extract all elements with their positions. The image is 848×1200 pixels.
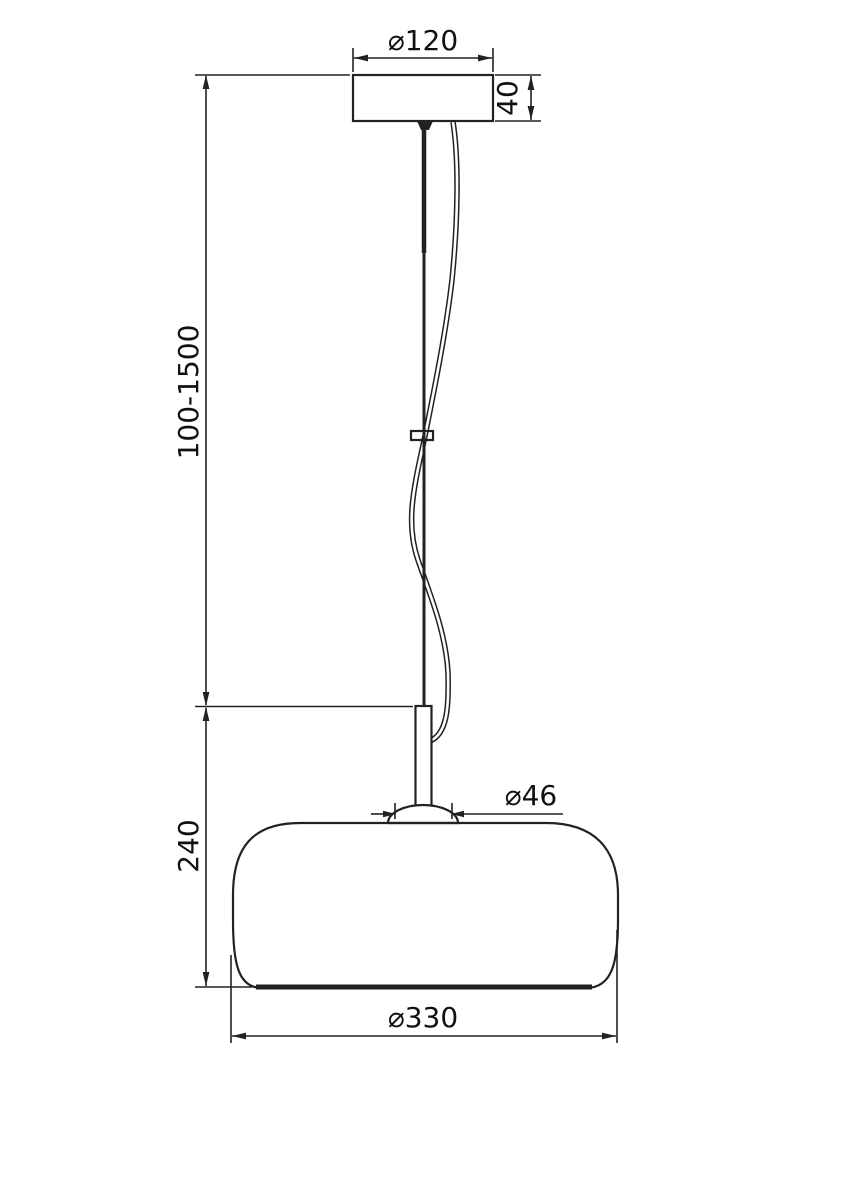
arrow-down-icon [528,106,535,120]
arrow-right-icon [602,1033,616,1040]
lamp-fixture [233,75,618,988]
stem-base-diameter-label: ⌀46 [505,779,558,812]
arrow-down-icon [203,692,210,706]
arrow-right-icon [478,55,492,62]
arrow-up-icon [203,75,210,89]
pendant-lamp-dimension-drawing: ⌀120 40 100-1500 240 [0,0,848,1200]
dimension-canopy-height: 40 [491,75,541,121]
lamp-shade [233,823,618,988]
arrow-down-icon [203,972,210,986]
dimension-shade-height: 240 [172,707,252,987]
stem-base-dome [388,805,458,823]
shade-height-label: 240 [172,819,205,872]
arrow-up-icon [203,707,210,721]
canopy-diameter-label: ⌀120 [388,24,458,57]
ceiling-canopy [353,75,493,121]
arrow-left-icon [354,55,368,62]
suspension-length-label: 100-1500 [172,325,205,460]
technical-drawing-page: ⌀120 40 100-1500 240 [0,0,848,1200]
arrow-up-icon [528,76,535,90]
dimension-canopy-diameter: ⌀120 [353,24,493,72]
dimension-suspension-length: 100-1500 [172,75,413,707]
canopy-height-label: 40 [491,80,524,116]
rod-cone-joint [417,121,433,130]
stem-tube [416,706,432,812]
arrow-left-icon [232,1033,246,1040]
shade-diameter-label: ⌀330 [388,1001,458,1034]
